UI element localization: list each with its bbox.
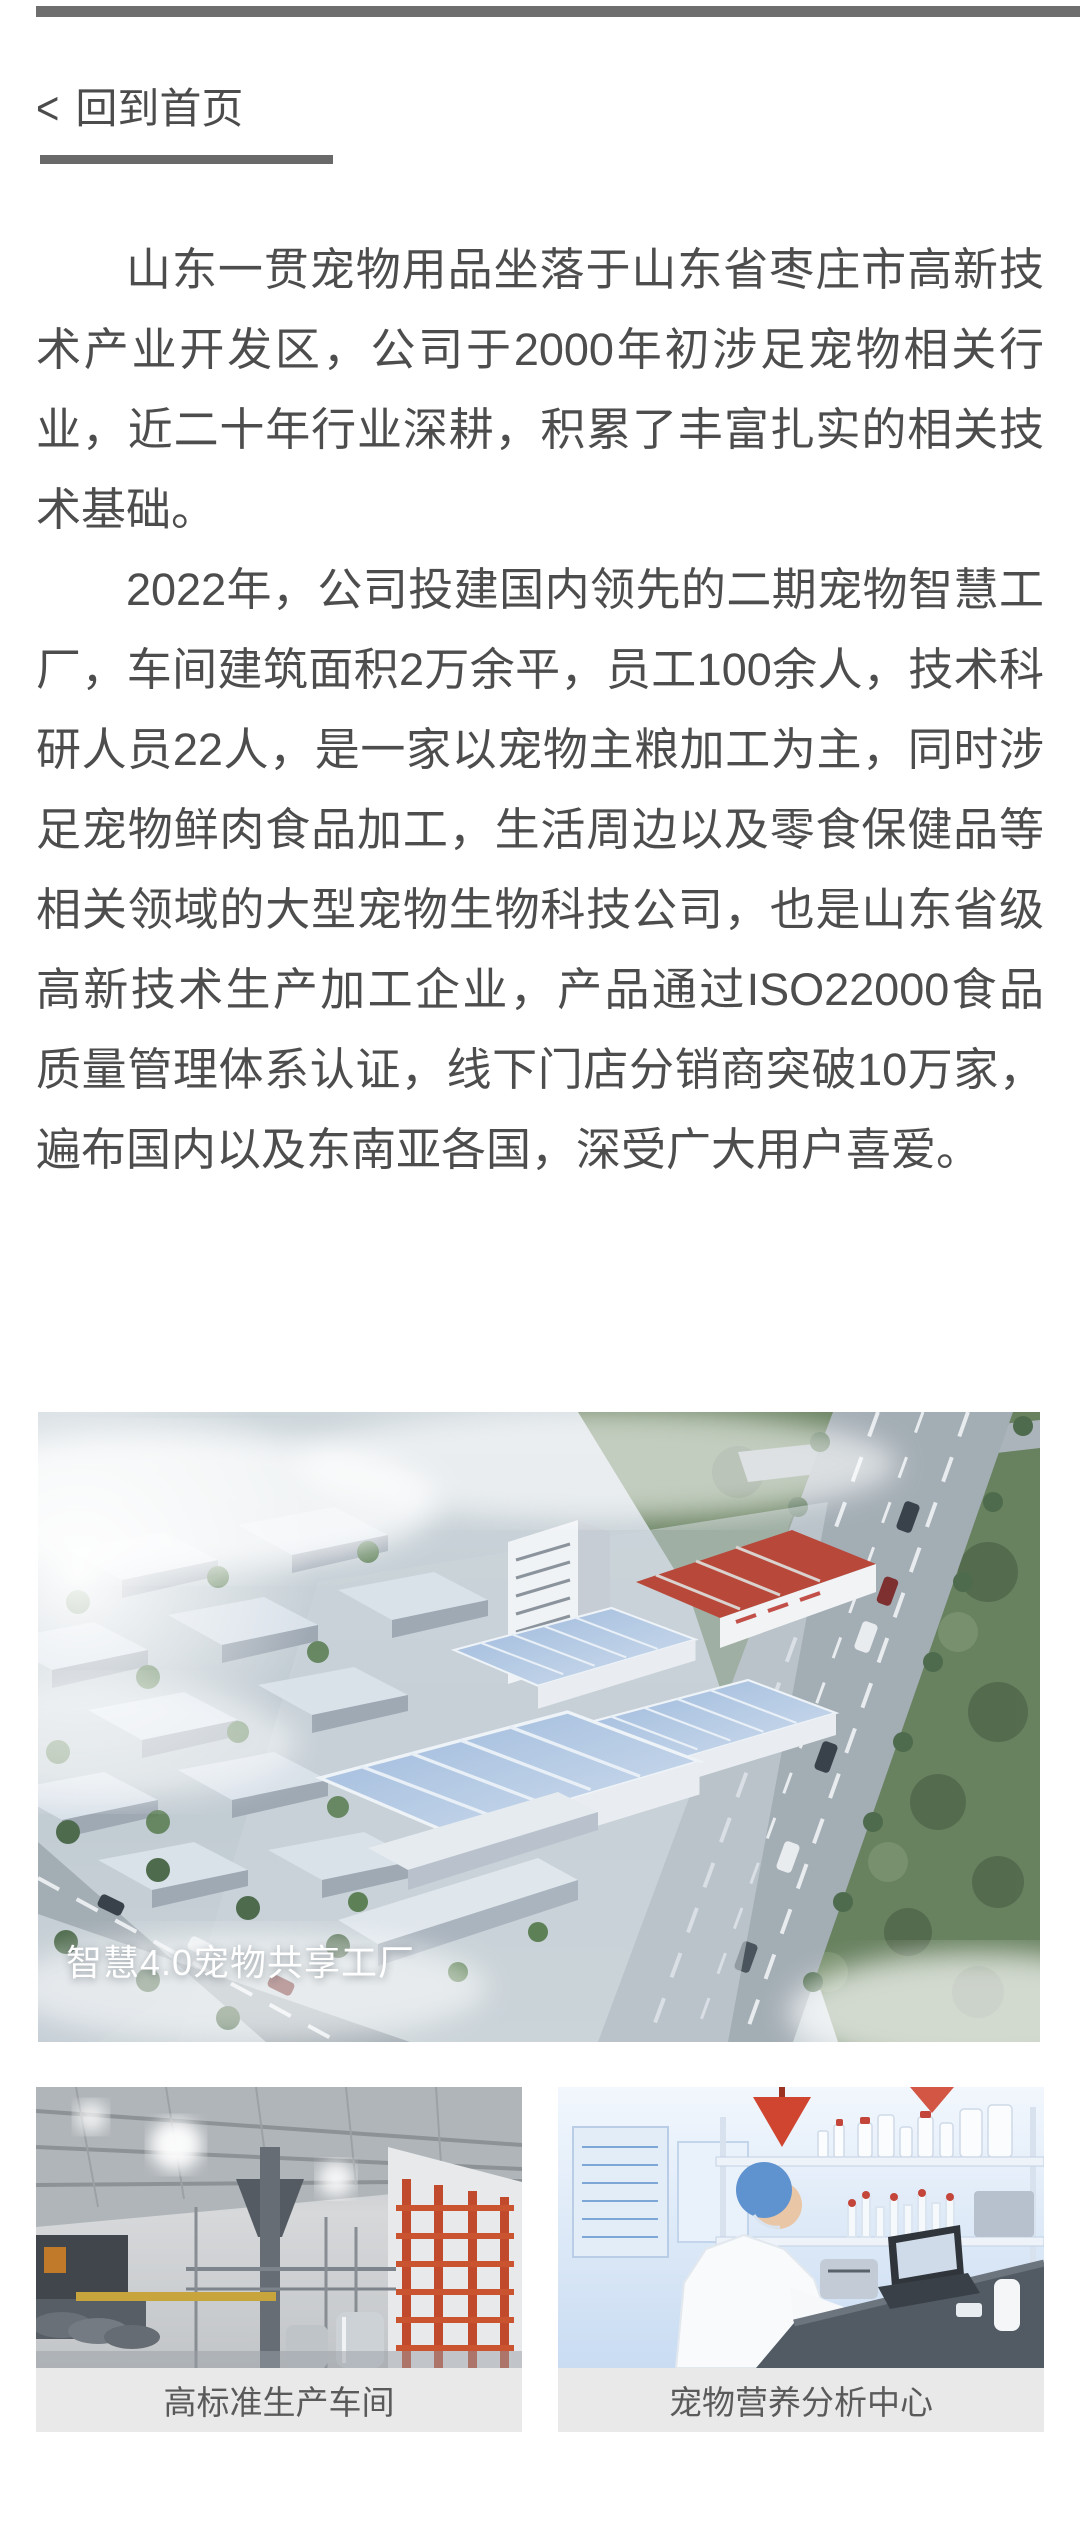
article-paragraph: 山东一贯宠物用品坐落于山东省枣庄市高新技术产业开发区，公司于2000年初涉足宠物… — [36, 230, 1044, 550]
lab-caption: 宠物营养分析中心 — [558, 2368, 1044, 2432]
lab-illustration — [558, 2087, 1044, 2368]
gallery-card-lab[interactable]: 宠物营养分析中心 — [558, 2087, 1044, 2432]
back-to-home-link[interactable]: < 回到首页 — [36, 84, 243, 134]
workshop-caption: 高标准生产车间 — [36, 2368, 522, 2432]
page-root: < 回到首页 山东一贯宠物用品坐落于山东省枣庄市高新技术产业开发区，公司于200… — [0, 0, 1080, 2542]
top-divider-bar — [36, 6, 1080, 17]
article-body: 山东一贯宠物用品坐落于山东省枣庄市高新技术产业开发区，公司于2000年初涉足宠物… — [36, 230, 1044, 1190]
back-chevron-icon: < — [36, 80, 59, 138]
hero-factory-image[interactable]: 智慧4.0宠物共享工厂 — [38, 1412, 1040, 2042]
lab-photo — [558, 2087, 1044, 2368]
article-paragraph: 2022年，公司投建国内领先的二期宠物智慧工厂，车间建筑面积2万余平，员工100… — [36, 550, 1044, 1190]
back-link-underline — [40, 155, 333, 164]
workshop-photo — [36, 2087, 522, 2368]
hero-caption: 智慧4.0宠物共享工厂 — [66, 1934, 415, 1986]
photo-gallery: 高标准生产车间 — [36, 2087, 1044, 2432]
gallery-card-workshop[interactable]: 高标准生产车间 — [36, 2087, 522, 2432]
workshop-illustration — [36, 2087, 522, 2368]
back-link-label: 回到首页 — [75, 84, 243, 134]
